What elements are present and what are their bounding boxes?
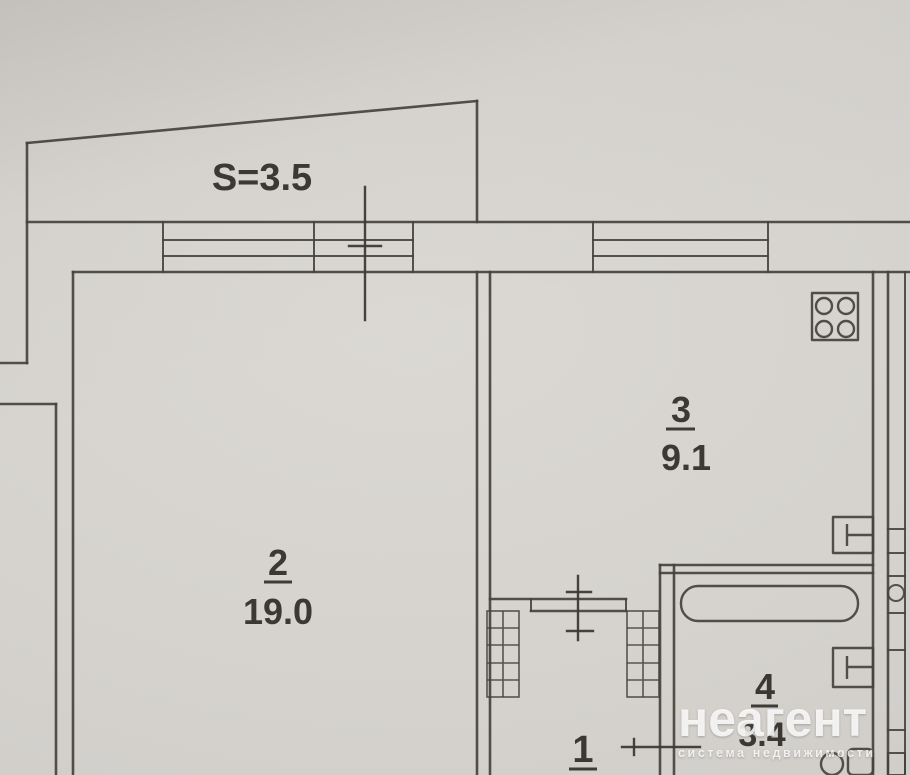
vent-shaft [888,529,905,775]
kitchen-window-band [593,222,768,272]
kitchen-sink-icon [833,517,873,553]
balcony-sloped-edge [27,101,477,143]
balcony-door-marker [349,187,381,320]
kitchen-door-marker [567,576,593,640]
balcony-area-label: S=3.5 [212,157,312,199]
room-3-area: 9.1 [661,437,711,478]
built-in-closet-left [487,611,519,697]
stove-icon [812,293,858,340]
watermark-tagline: система недвижимости [678,747,876,760]
built-in-closet-right [627,611,659,697]
closet-hatch [487,611,519,697]
vent-shaft-box [888,753,905,775]
stove-burner [838,298,854,314]
room-labels: S=3.5 2 19.0 3 9.1 4 3.4 1 [212,157,786,771]
room-3-number: 3 [671,389,691,430]
vent-pipe [888,585,904,601]
closet-hatch [627,611,659,697]
vent-shaft-rungs [888,529,905,730]
room-2-area: 19.0 [243,591,313,632]
room-1-number: 1 [572,729,593,771]
watermark: неагент система недвижимости [678,694,876,760]
stove-burner [816,298,832,314]
room-2-number: 2 [268,542,288,583]
balcony-outline [0,101,477,363]
floor-plan-drawing: S=3.5 2 19.0 3 9.1 4 3.4 1 [0,0,910,775]
sink-tap [847,656,872,679]
watermark-brand: неагент [678,694,876,744]
bathtub-icon [681,586,858,621]
sink-tap [847,524,872,546]
stove-burner [816,321,832,337]
stove-burner [838,321,854,337]
bathroom-sink-icon [833,648,873,687]
bathtub-body [681,586,858,621]
floor-plan-scan: S=3.5 2 19.0 3 9.1 4 3.4 1 неагент систе… [0,0,910,775]
